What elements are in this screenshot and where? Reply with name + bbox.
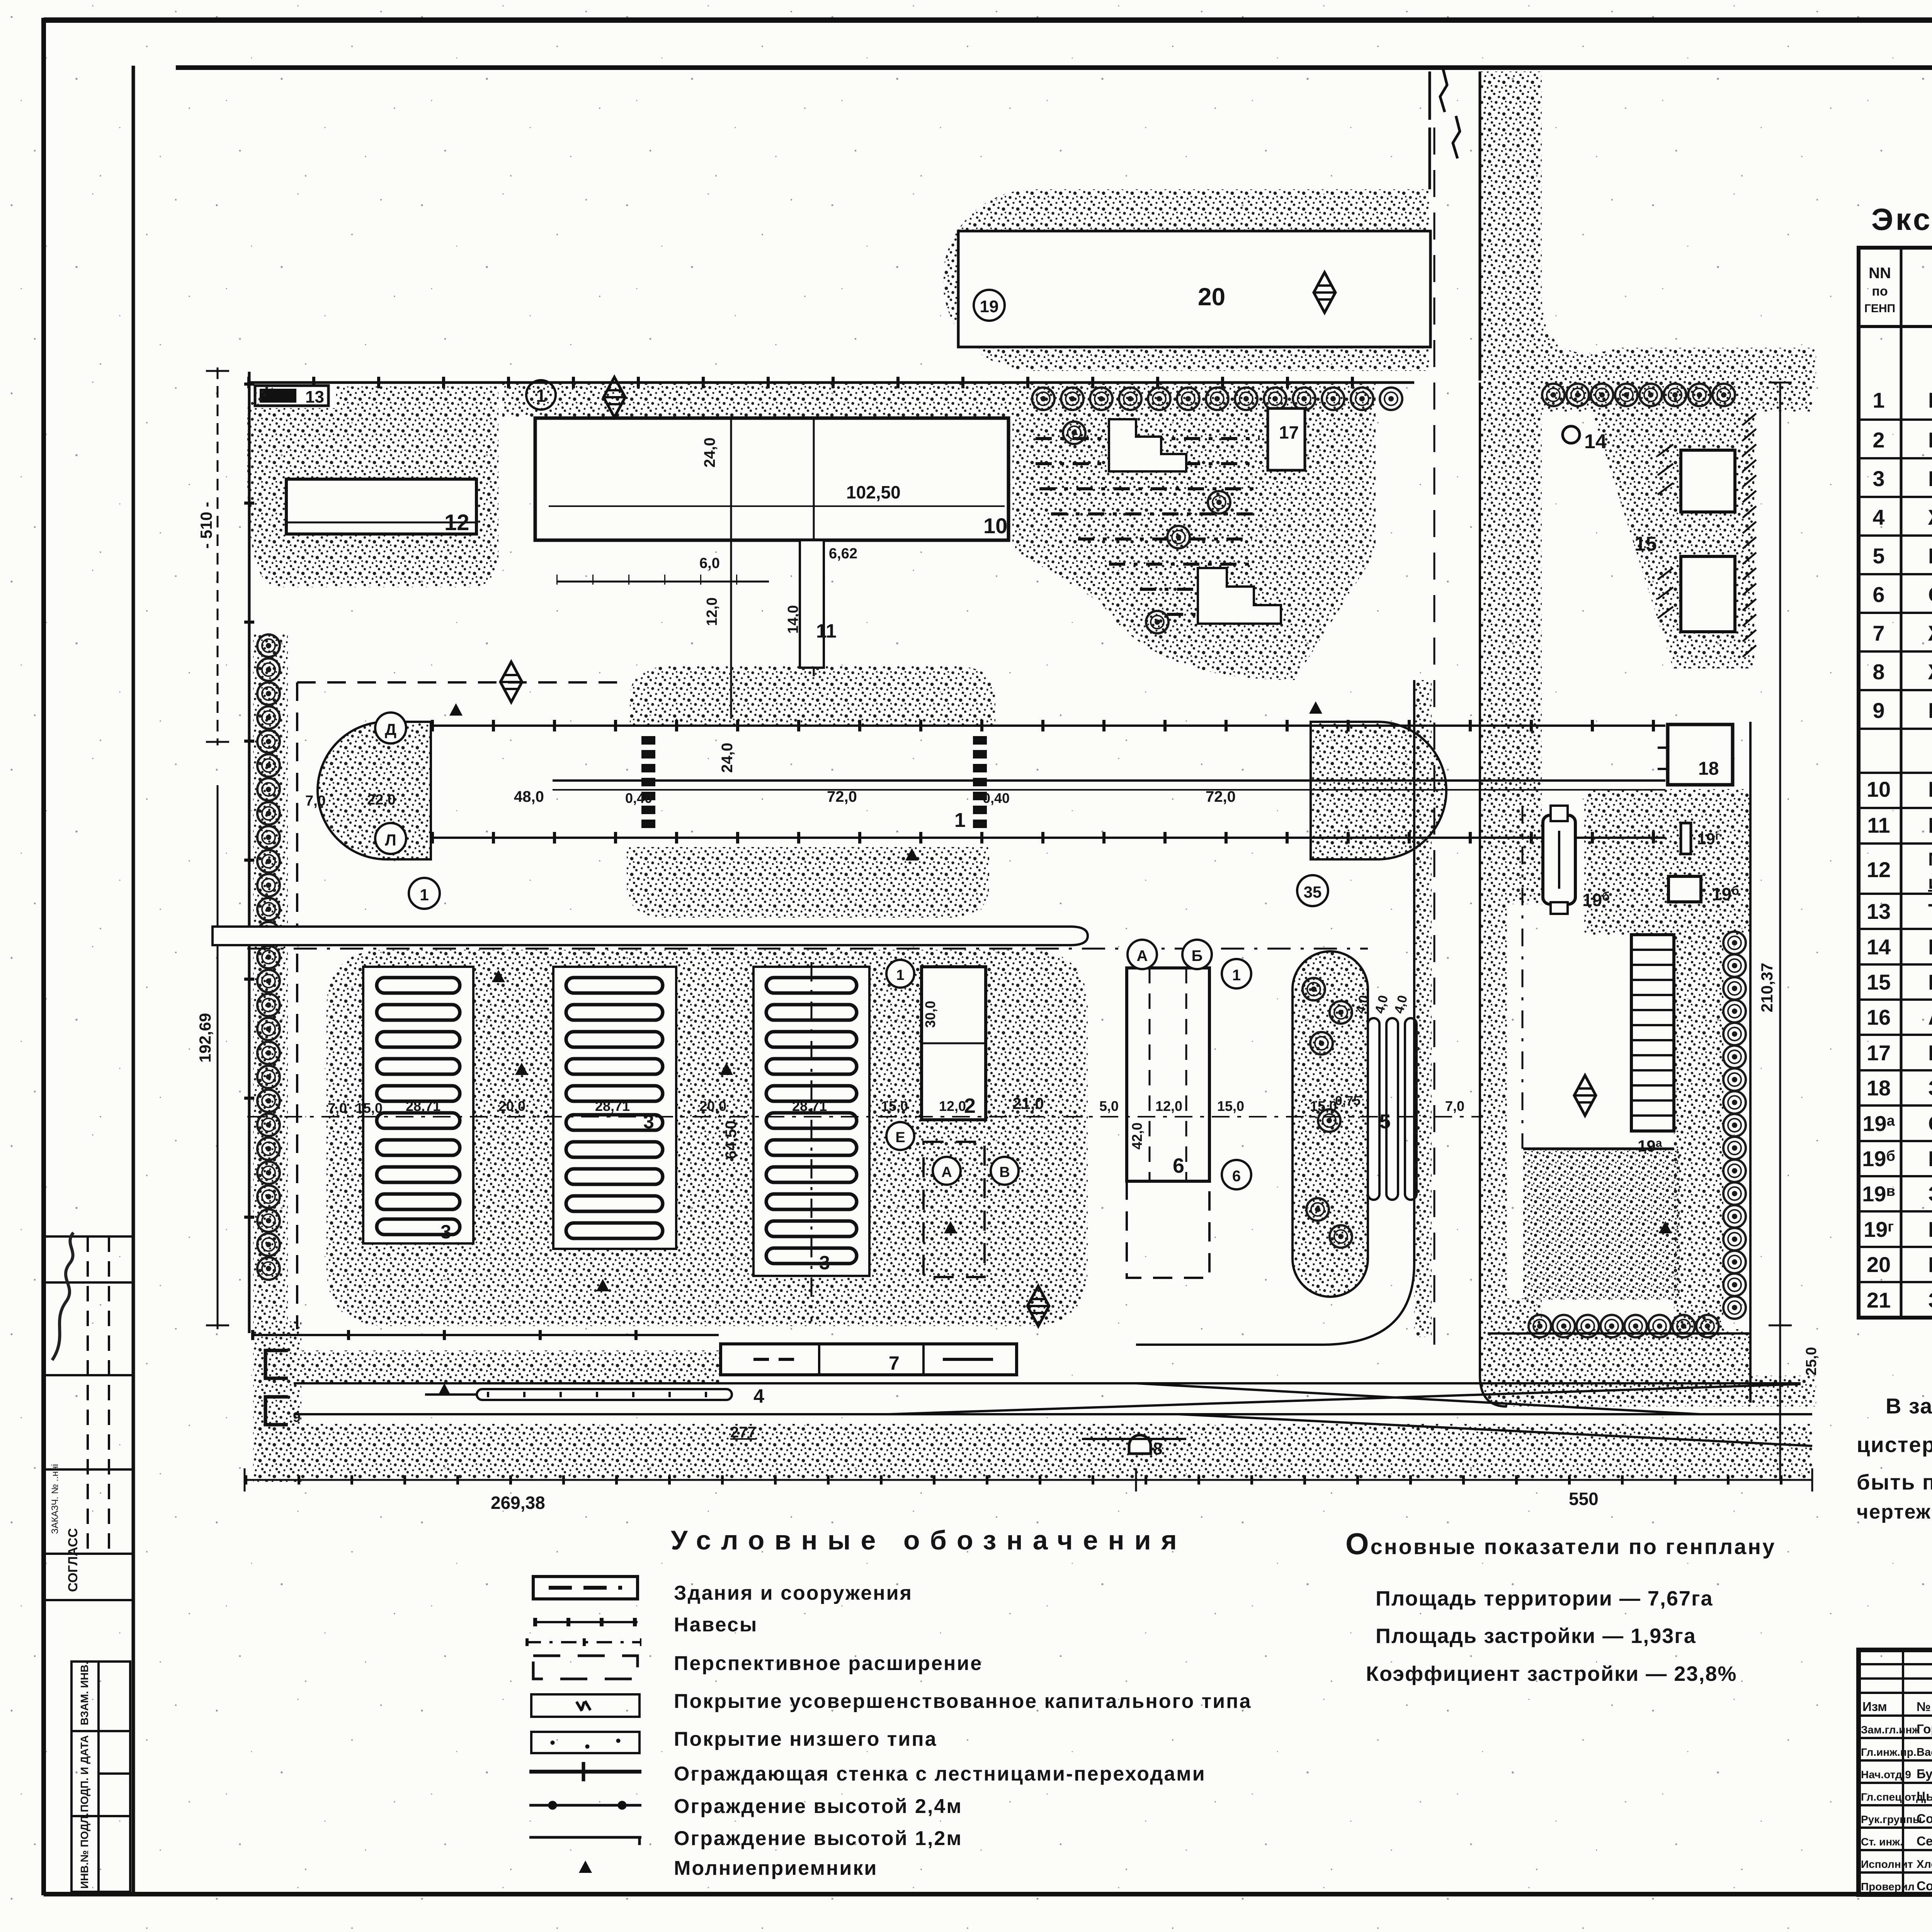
svg-text:6,0: 6,0 — [699, 555, 720, 571]
svg-text:- 510 -: - 510 - — [197, 502, 215, 549]
svg-text:25,0: 25,0 — [1803, 1347, 1820, 1376]
svg-text:Горшков: Горшков — [1917, 1722, 1932, 1736]
svg-text:Склад баллонов: Склад баллонов — [1928, 582, 1932, 607]
svg-text:1: 1 — [536, 386, 546, 406]
svg-text:28,71: 28,71 — [595, 1098, 630, 1114]
svg-text:цистерн с сжиженным газом, как: цистерн с сжиженным газом, как вариант, … — [1857, 1432, 1932, 1457]
svg-text:Ограждение высотой 2,4м: Ограждение высотой 2,4м — [674, 1795, 963, 1818]
svg-text:Маневровые лебедки: Маневровые лебедки — [1928, 698, 1932, 723]
svg-text:4: 4 — [1872, 505, 1884, 529]
svg-text:Ограждающая стенка с лестницам: Ограждающая стенка с лестницами-перехода… — [674, 1763, 1206, 1785]
svg-text:Гл.инж.пр.: Гл.инж.пр. — [1861, 1746, 1917, 1758]
svg-text:Навесы: Навесы — [674, 1614, 758, 1636]
svg-text:1: 1 — [1872, 388, 1884, 412]
svg-text:Наполнительные колонки для авт: Наполнительные колонки для автоцистерн — [1928, 544, 1932, 568]
svg-text:2: 2 — [1872, 428, 1884, 452]
svg-text:В зависимости от количества по: В зависимости от количества поставки жел… — [1886, 1394, 1932, 1418]
svg-text:12: 12 — [1867, 857, 1891, 882]
svg-text:210,37: 210,37 — [1758, 963, 1776, 1012]
svg-text:18: 18 — [1698, 759, 1719, 779]
svg-text:192,69: 192,69 — [196, 1013, 214, 1063]
svg-text:9: 9 — [1872, 698, 1884, 723]
svg-text:Здания и сооружения: Здания и сооружения — [674, 1582, 913, 1604]
svg-text:Соловьева: Соловьева — [1917, 1811, 1932, 1826]
svg-text:28,71: 28,71 — [406, 1098, 440, 1114]
svg-text:Железнодорожная платформа: Железнодорожная платформа — [1928, 621, 1932, 645]
svg-text:24,0: 24,0 — [719, 743, 736, 773]
svg-text:3: 3 — [1872, 466, 1884, 491]
svg-text:16: 16 — [1867, 1005, 1891, 1029]
svg-text:Покрытие усовершенствованное к: Покрытие усовершенствованное капитальног… — [674, 1690, 1252, 1713]
svg-text:Место возможного размещения ко: Место возможного размещения котельной — [1928, 849, 1932, 870]
svg-text:1: 1 — [420, 886, 429, 904]
svg-text:Автомобильные весы: Автомобильные весы — [1928, 1005, 1932, 1029]
svg-text:Молниеприемники: Молниеприемники — [674, 1857, 878, 1879]
svg-text:ЗАКАЗЧ. № ..нні: ЗАКАЗЧ. № ..нні — [50, 1464, 60, 1534]
svg-text:Зарядная станция: Зарядная станция — [1928, 1076, 1932, 1100]
svg-text:21: 21 — [1867, 1288, 1891, 1312]
svg-text:48,0: 48,0 — [514, 788, 544, 805]
svg-text:Василевская: Василевская — [1917, 1746, 1932, 1759]
svg-text:Зам.гл.инж: Зам.гл.инж — [1861, 1724, 1920, 1736]
svg-text:17: 17 — [1867, 1041, 1891, 1065]
svg-text:20,0: 20,0 — [699, 1098, 726, 1114]
svg-text:Контрольно-пропускной пункт: Контрольно-пропускной пункт — [1928, 1041, 1932, 1065]
svg-text:5: 5 — [1872, 544, 1884, 568]
svg-text:Водонапорная башня: Водонапорная башня — [1928, 935, 1932, 959]
svg-text:12,0: 12,0 — [939, 1098, 966, 1114]
svg-text:15: 15 — [1867, 970, 1891, 994]
svg-text:Изм: Изм — [1862, 1699, 1887, 1714]
svg-text:Площадка перед въездом: Площадка перед въездом — [1928, 1252, 1932, 1277]
svg-text:6: 6 — [1173, 1154, 1184, 1177]
svg-text:Д: Д — [385, 720, 396, 738]
svg-text:24,0: 24,0 — [701, 437, 718, 468]
svg-text:Условные обозначения: Условные обозначения — [671, 1525, 1187, 1555]
svg-text:19: 19 — [980, 297, 999, 316]
svg-text:10: 10 — [983, 514, 1007, 538]
svg-text:550: 550 — [1569, 1489, 1599, 1509]
svg-text:Нач.отд.9: Нач.отд.9 — [1861, 1769, 1911, 1781]
svg-text:8: 8 — [1872, 660, 1884, 684]
svg-text:4: 4 — [753, 1385, 764, 1407]
svg-text:Железнодорожная эстакада: Железнодорожная эстакада — [1928, 505, 1932, 529]
svg-text:30,0: 30,0 — [922, 1001, 938, 1028]
svg-text:7,0: 7,0 — [305, 793, 326, 809]
svg-text:9: 9 — [293, 1409, 301, 1425]
svg-text:быть применена сливная эстакад: быть применена сливная эстакада и жел.до… — [1857, 1470, 1932, 1494]
svg-text:по: по — [1872, 284, 1888, 299]
svg-text:Проверил: Проверил — [1861, 1881, 1915, 1893]
svg-text:Стоянка для автомобилей: Стоянка для автомобилей — [1928, 1111, 1932, 1136]
svg-text:72,0: 72,0 — [1206, 788, 1236, 805]
svg-text:6,62: 6,62 — [829, 546, 857, 562]
svg-text:СОГЛАСС: СОГЛАСС — [66, 1528, 80, 1592]
svg-text:Ограждение высотой 1,2м: Ограждение высотой 1,2м — [674, 1827, 963, 1850]
svg-text:Рук.группы: Рук.группы — [1861, 1813, 1922, 1825]
svg-text:Переходная галерея: Переходная галерея — [1928, 813, 1932, 837]
svg-text:22,0: 22,0 — [367, 792, 396, 808]
svg-text:18: 18 — [1867, 1076, 1891, 1100]
svg-text:7,0: 7,0 — [1445, 1098, 1464, 1114]
svg-text:Исполнит: Исполнит — [1861, 1858, 1913, 1870]
svg-text:11: 11 — [816, 620, 837, 642]
svg-text:Трансформаторная подстанция: Трансформаторная подстанция — [1928, 899, 1932, 923]
svg-text:ГЕНП: ГЕНП — [1864, 302, 1895, 315]
svg-text:Цыпин: Цыпин — [1917, 1789, 1932, 1803]
svg-text:Железнодорожные весы: Железнодорожные весы — [1928, 660, 1932, 684]
svg-text:Группы емкостей: Группы емкостей — [1928, 466, 1932, 491]
svg-text:Б: Б — [1192, 947, 1203, 964]
svg-text:7: 7 — [1872, 621, 1884, 645]
svg-text:Коэффициент застройки — 23,8%: Коэффициент застройки — 23,8% — [1366, 1662, 1737, 1685]
svg-text:Семенова: Семенова — [1917, 1834, 1932, 1848]
svg-text:12,0: 12,0 — [1155, 1098, 1182, 1114]
svg-text:20: 20 — [1198, 283, 1225, 311]
svg-text:15,0: 15,0 — [355, 1100, 383, 1116]
svg-text:10: 10 — [1867, 777, 1891, 801]
svg-text:А: А — [1137, 947, 1148, 964]
svg-text:0,40: 0,40 — [983, 790, 1010, 806]
svg-text:Камера воздухоподогрева: Камера воздухоподогрева — [1928, 1146, 1932, 1171]
svg-text:102,50: 102,50 — [846, 482, 901, 502]
svg-text:15,0: 15,0 — [1310, 1098, 1337, 1114]
svg-text:ПОДП. И ДАТА: ПОДП. И ДАТА — [78, 1735, 90, 1812]
svg-text:12: 12 — [444, 510, 469, 535]
svg-text:6: 6 — [1872, 582, 1884, 607]
svg-text:Насосно - компрессорный цех: Насосно - компрессорный цех — [1928, 428, 1932, 452]
svg-text:8: 8 — [1153, 1439, 1162, 1458]
svg-text:или центрального теплового пун: или центрального теплового пункта — [1928, 872, 1932, 893]
svg-text:15: 15 — [1634, 533, 1657, 555]
svg-text:Е: Е — [895, 1129, 905, 1146]
svg-text:20: 20 — [1867, 1252, 1891, 1277]
svg-text:Экспликация зданий и сооружени: Экспликация зданий и сооружений — [1871, 202, 1932, 236]
svg-text:Покрытие низшего типа: Покрытие низшего типа — [674, 1728, 937, 1750]
svg-text:3: 3 — [440, 1221, 451, 1243]
svg-text:№ докум.: № докум. — [1917, 1699, 1932, 1714]
svg-text:В: В — [999, 1164, 1010, 1180]
svg-text:1: 1 — [896, 967, 904, 983]
svg-text:Перспективное расширение: Перспективное расширение — [674, 1652, 983, 1675]
svg-text:12,0: 12,0 — [704, 597, 720, 626]
svg-text:20,0: 20,0 — [498, 1098, 526, 1114]
svg-text:NN: NN — [1869, 265, 1891, 282]
svg-text:17: 17 — [1279, 422, 1299, 442]
svg-text:Эстакада для мойки машин: Эстакада для мойки машин — [1928, 1182, 1932, 1206]
svg-text:13: 13 — [1867, 899, 1891, 923]
svg-text:Соловьева: Соловьева — [1917, 1879, 1932, 1893]
svg-text:Пожарные резервуары с насосной: Пожарные резервуары с насосной станцией — [1928, 970, 1932, 994]
svg-text:13: 13 — [305, 388, 324, 406]
svg-text:чертежам генплана и архитектур: чертежам генплана и архитектурно-строите… — [1857, 1501, 1932, 1523]
svg-text:Л: Л — [385, 831, 396, 849]
svg-text:Гл.спец.отд: Гл.спец.отд — [1861, 1791, 1923, 1803]
svg-text:277: 277 — [730, 1424, 756, 1441]
svg-text:0,40: 0,40 — [625, 790, 652, 806]
svg-text:Грязеотстойник: Грязеотстойник — [1928, 1217, 1932, 1242]
svg-text:А: А — [941, 1164, 952, 1180]
svg-text:15,0: 15,0 — [881, 1098, 908, 1114]
svg-text:1: 1 — [1232, 967, 1241, 984]
svg-text:6: 6 — [1232, 1168, 1241, 1185]
svg-text:0,75: 0,75 — [1335, 1094, 1361, 1108]
svg-text:21,0: 21,0 — [1012, 1094, 1044, 1112]
svg-text:7,0: 7,0 — [328, 1100, 347, 1116]
svg-text:72,0: 72,0 — [827, 788, 857, 805]
svg-text:ИНВ.№ ПОДЛ.: ИНВ.№ ПОДЛ. — [78, 1813, 90, 1889]
svg-text:42,0: 42,0 — [1129, 1122, 1145, 1150]
svg-text:Площадь застройки — 1,93га: Площадь застройки — 1,93га — [1376, 1624, 1696, 1648]
svg-text:3: 3 — [643, 1111, 654, 1133]
svg-text:11: 11 — [1867, 813, 1890, 837]
svg-text:7: 7 — [889, 1352, 900, 1374]
svg-text:Зона отдыха: Зона отдыха — [1928, 1288, 1932, 1312]
svg-text:Блок вспомогательных помещений: Блок вспомогательных помещений — [1928, 777, 1932, 801]
svg-text:Площадь территории — 7,67га: Площадь территории — 7,67га — [1376, 1587, 1713, 1610]
svg-text:5,0: 5,0 — [1099, 1098, 1119, 1114]
svg-text:15,0: 15,0 — [1217, 1098, 1244, 1114]
svg-text:28,71: 28,71 — [792, 1098, 827, 1114]
svg-text:Ст. инж.: Ст. инж. — [1861, 1836, 1903, 1848]
svg-text:3: 3 — [819, 1252, 830, 1274]
svg-text:5: 5 — [1379, 1111, 1391, 1133]
svg-text:269,38: 269,38 — [491, 1493, 545, 1513]
svg-text:Буджо: Буджо — [1917, 1767, 1932, 1781]
svg-text:14: 14 — [1867, 935, 1891, 959]
svg-text:1: 1 — [954, 809, 966, 832]
svg-text:ВЗАМ. ИНВ.: ВЗАМ. ИНВ. — [78, 1662, 90, 1725]
svg-text:64,50: 64,50 — [723, 1121, 740, 1159]
svg-text:35: 35 — [1304, 883, 1322, 901]
svg-text:Наполнительный цех: Наполнительный цех — [1928, 388, 1932, 412]
svg-text:Хлебникова: Хлебникова — [1917, 1858, 1932, 1871]
